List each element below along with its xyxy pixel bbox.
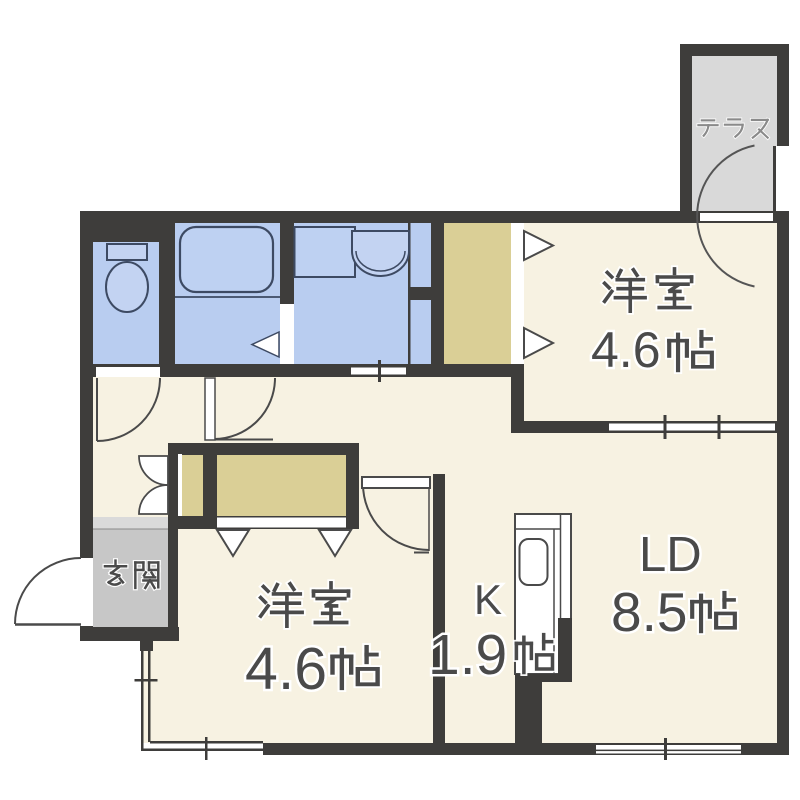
svg-text:1.9: 1.9	[428, 623, 507, 687]
svg-text:K: K	[474, 576, 502, 623]
svg-text:4.6: 4.6	[591, 322, 661, 378]
svg-text:8.5: 8.5	[611, 581, 687, 643]
svg-text:4.6: 4.6	[245, 636, 327, 702]
svg-text:LD: LD	[639, 528, 702, 582]
